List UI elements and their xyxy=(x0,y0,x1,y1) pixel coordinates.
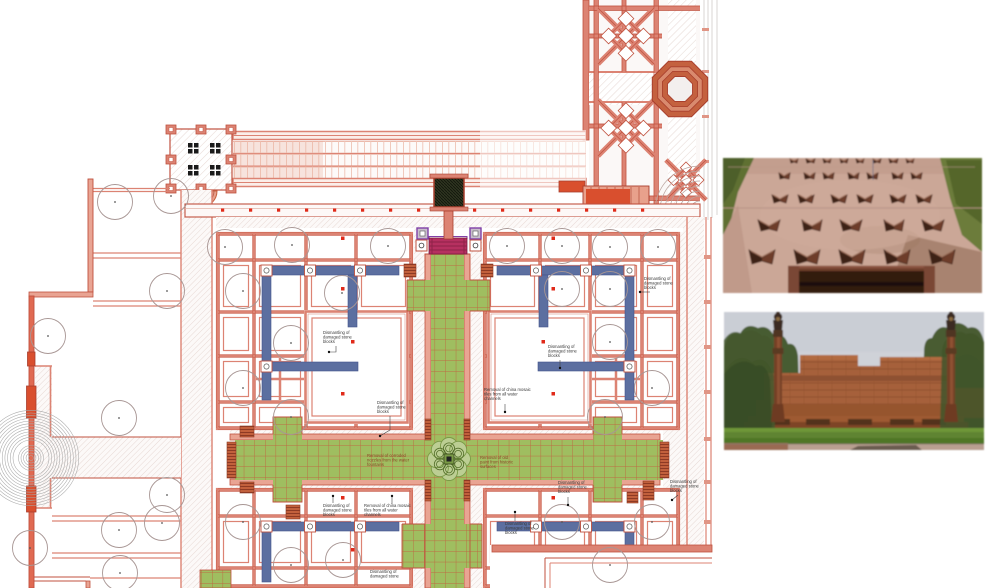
svg-text:surfaces: surfaces xyxy=(480,464,496,469)
svg-text:blocks: blocks xyxy=(505,530,517,535)
svg-text:blocks: blocks xyxy=(377,409,389,414)
svg-text:blocks: blocks xyxy=(558,489,570,494)
svg-text:channels: channels xyxy=(364,512,381,517)
svg-text:blocks: blocks xyxy=(323,339,335,344)
svg-text:channels: channels xyxy=(484,396,501,401)
svg-text:damaged stone: damaged stone xyxy=(370,574,400,579)
svg-text:blocks: blocks xyxy=(644,285,656,290)
svg-text:fountains: fountains xyxy=(367,462,384,467)
svg-text:blocks: blocks xyxy=(670,488,682,493)
svg-text:blocks: blocks xyxy=(548,353,560,358)
svg-text:blocks: blocks xyxy=(323,512,335,517)
